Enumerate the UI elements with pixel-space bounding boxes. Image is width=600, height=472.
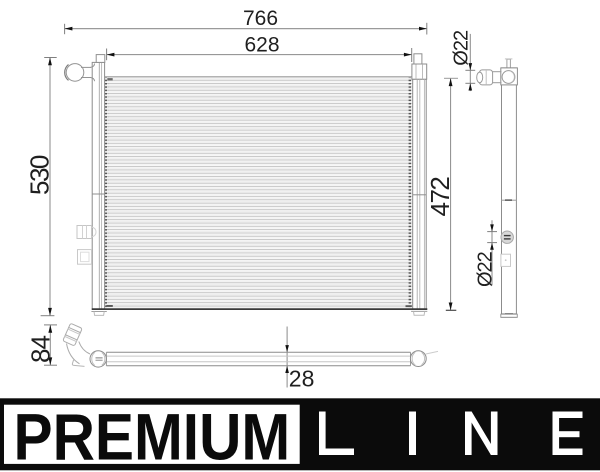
svg-text:472: 472 [425,177,455,217]
svg-text:PREMIUM: PREMIUM [14,401,291,472]
svg-text:84: 84 [26,336,56,363]
svg-text:Ø22: Ø22 [475,251,497,287]
svg-text:766: 766 [243,7,278,30]
svg-text:530: 530 [24,155,54,195]
svg-text:Ø22: Ø22 [451,30,473,66]
svg-text:28: 28 [289,366,315,392]
svg-text:628: 628 [244,33,279,56]
